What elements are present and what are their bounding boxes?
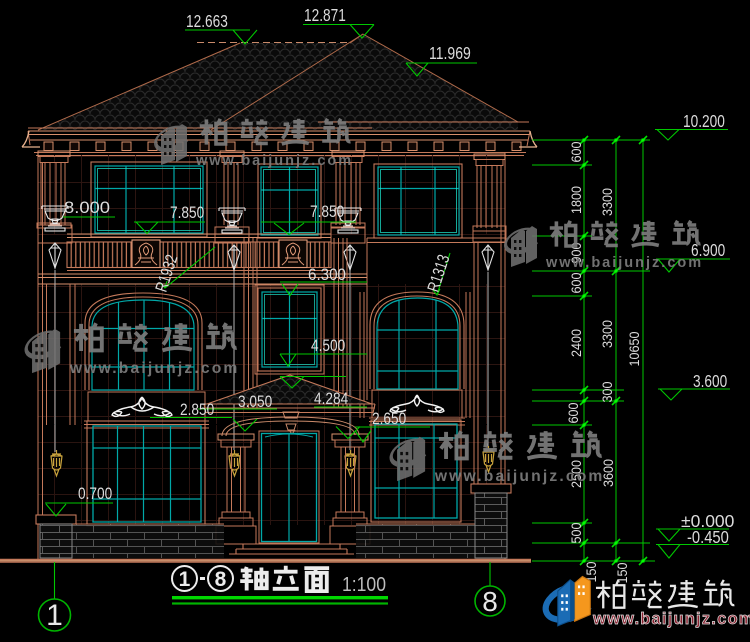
svg-text:-0.450: -0.450 bbox=[687, 527, 729, 547]
svg-text:7.850: 7.850 bbox=[310, 202, 344, 221]
svg-text:3.050: 3.050 bbox=[238, 392, 272, 411]
svg-text:6.300: 6.300 bbox=[308, 265, 346, 284]
svg-text:1800: 1800 bbox=[568, 186, 584, 214]
svg-text:2400: 2400 bbox=[568, 329, 584, 357]
svg-text:1:100: 1:100 bbox=[342, 574, 386, 596]
svg-text:2.650: 2.650 bbox=[372, 409, 406, 428]
svg-text:8: 8 bbox=[215, 568, 227, 591]
svg-text:1: 1 bbox=[179, 568, 191, 591]
svg-text:3.600: 3.600 bbox=[693, 371, 727, 391]
svg-text:4.500: 4.500 bbox=[311, 336, 345, 355]
svg-text:300: 300 bbox=[599, 381, 615, 402]
svg-text:600: 600 bbox=[568, 272, 584, 293]
svg-text:600: 600 bbox=[565, 402, 581, 423]
svg-text:10650: 10650 bbox=[626, 331, 642, 366]
svg-text:0.700: 0.700 bbox=[78, 484, 112, 503]
svg-text:12.871: 12.871 bbox=[304, 5, 346, 25]
svg-text:500: 500 bbox=[568, 522, 584, 543]
svg-text:600: 600 bbox=[568, 141, 584, 162]
svg-text:www.baijunjz.com: www.baijunjz.com bbox=[592, 610, 750, 628]
svg-text:4.284: 4.284 bbox=[314, 389, 348, 408]
svg-text:10.200: 10.200 bbox=[683, 111, 725, 131]
svg-text:3300: 3300 bbox=[599, 320, 615, 348]
svg-text:150: 150 bbox=[614, 562, 630, 583]
svg-text:2.850: 2.850 bbox=[180, 400, 214, 419]
svg-text:3300: 3300 bbox=[599, 188, 615, 216]
svg-text:12.663: 12.663 bbox=[186, 11, 228, 31]
svg-text:8.000: 8.000 bbox=[64, 198, 110, 217]
svg-text:7.850: 7.850 bbox=[170, 203, 204, 222]
svg-text:1: 1 bbox=[46, 599, 63, 632]
svg-text:8: 8 bbox=[482, 586, 498, 617]
svg-text:11.969: 11.969 bbox=[429, 43, 471, 63]
